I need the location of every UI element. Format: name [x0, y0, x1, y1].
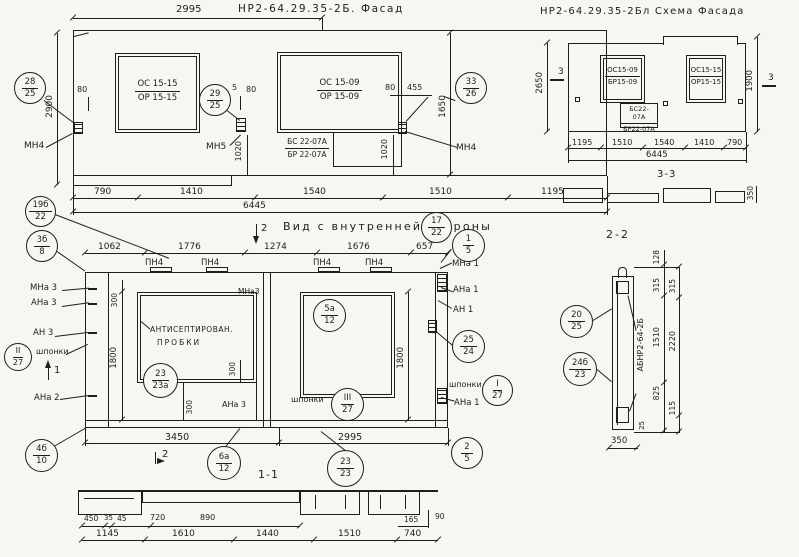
inner-section1-mark: 1: [54, 366, 60, 376]
dim-ext-line: [756, 186, 757, 203]
section-mark-line: [762, 85, 776, 87]
section33-profile-block: [563, 188, 603, 203]
scheme-dim-height-right: 1900: [746, 70, 755, 92]
inner-panel-joint-line: [263, 272, 264, 428]
callout-top: 23: [337, 458, 354, 469]
inner-label-an3: АН 3: [33, 329, 53, 338]
dim-ext-line: [634, 432, 680, 433]
callout-25-24: 2524: [452, 330, 485, 363]
s11-dim-1145: 1145: [96, 530, 119, 539]
section11-web: [142, 490, 300, 503]
callout-top: III: [341, 394, 355, 405]
s11-dim-720: 720: [150, 514, 165, 522]
s11-dim-740: 740: [404, 530, 421, 539]
edge-mark: [88, 303, 97, 305]
inner-dim-1676: 1676: [347, 243, 370, 252]
s11-dim-90: 90: [435, 513, 445, 521]
callout-bottom: 23а: [152, 381, 168, 391]
s11-dim-1510: 1510: [338, 530, 361, 539]
callout-top: 17: [428, 217, 445, 228]
inner-label-ana1-top: АНа 1: [453, 286, 479, 295]
inner-dim-1800-right: 1800: [397, 347, 406, 369]
dim-ext-line: [85, 428, 86, 446]
inner-dim-300-top: 300: [111, 293, 119, 307]
mark-top: ОС 15-15: [135, 79, 179, 92]
inner-dim-1800-left: 1800: [110, 347, 119, 369]
dim-tick: [634, 444, 640, 450]
inner-label-mna3: МНа 3: [30, 284, 57, 293]
section-mark-line: [48, 368, 49, 380]
scheme-dim-height-left: 2650: [536, 72, 545, 94]
inner-label-ana1-bottom: АНа 1: [454, 399, 480, 408]
section33-dim-350: 350: [747, 186, 755, 200]
callout-bottom: 22: [35, 212, 46, 222]
s11-dim-165: 165: [404, 516, 418, 524]
inner-label-ana2: АНа 2: [34, 394, 60, 403]
callout-bottom: 25: [571, 322, 582, 332]
scheme-dim-1510: 1510: [612, 139, 632, 147]
anchor-mn4-left: [74, 122, 83, 134]
section-mark-line: [155, 452, 156, 464]
section33-profile-block: [607, 193, 659, 203]
callout-5a-12: 5а12: [313, 299, 346, 332]
mark-bottom: БР22-07А: [621, 124, 657, 133]
s11-dim-450: 450: [84, 515, 98, 523]
dim-tick: [754, 128, 760, 134]
facade-door-mark: БС 22-07А БР 22-07А: [278, 137, 336, 160]
callout-III-27: III27: [331, 388, 364, 421]
s22-dim-315b: 315: [669, 279, 677, 293]
callout-top: 25: [460, 336, 477, 347]
s22-dim-25: 25: [639, 421, 646, 430]
callout-top: I: [493, 380, 502, 391]
dim-tick: [445, 249, 451, 255]
edge-mark: [88, 288, 97, 290]
s22-dim-315a: 315: [653, 278, 661, 292]
section-3-3-title: 3-3: [657, 170, 676, 180]
callout-bottom: 23: [575, 370, 586, 380]
inner-dim-2995: 2995: [338, 433, 362, 443]
callout-bottom: 5: [466, 246, 471, 256]
callout-top: 23: [152, 370, 169, 381]
scheme-dim-790: 790: [727, 139, 742, 147]
callout-bottom: 27: [342, 405, 353, 415]
facade-label-mn4-left: МН4: [24, 142, 44, 151]
facade-dim-5: 5: [232, 84, 237, 92]
inner-dim-1062: 1062: [98, 243, 121, 252]
callout-top: 29: [207, 90, 224, 101]
callout-bottom: 23: [340, 469, 351, 479]
edge-mark: [88, 332, 97, 334]
inner-anchor-right-bottom: [437, 388, 447, 404]
leader-line: [55, 332, 89, 337]
inner-dim-300-mid: 300: [229, 362, 237, 376]
mark-top: БС 22-07А: [285, 137, 329, 149]
section22-bottom-recess: [616, 407, 629, 423]
callout-24b-23: 24б23: [563, 352, 597, 386]
dim-ext-line: [428, 510, 429, 528]
callout-top: 33: [463, 78, 480, 89]
callout-bottom: 8: [39, 247, 44, 257]
s11-dim-45: 45: [117, 515, 127, 523]
callout-17-22: 1722: [421, 212, 452, 243]
section-arrow-up: [45, 360, 51, 368]
leader-line: [597, 369, 612, 382]
inner-dim-1776: 1776: [178, 243, 201, 252]
facade-panel-bottom-step: [73, 175, 232, 186]
facade-title: НР2-64.29.35-2Б. Фасад: [238, 4, 404, 15]
inner-note-line1: АНТИСЕПТИРОВАН.: [150, 326, 233, 334]
scheme-anchor-square: [663, 101, 668, 106]
dim-line: [122, 280, 123, 421]
dim-ext-line: [746, 132, 747, 163]
facade-dim-80-left: 80: [77, 86, 87, 94]
inner-panel-joint-line: [270, 272, 271, 428]
dim-line: [450, 33, 451, 175]
mark-bottom: БР15-09: [601, 77, 644, 87]
callout-29-25: 2925: [199, 84, 231, 116]
callout-bottom: 27: [492, 391, 503, 401]
inner-section2-mark-top: 2: [261, 224, 267, 234]
dim-line: [82, 526, 300, 527]
mark-bottom: ОР 15-09: [287, 91, 392, 103]
inner-label-mna3-small: МНа3: [238, 288, 259, 296]
s22-dim-2220: 2220: [669, 331, 677, 351]
dim-ext-line: [393, 135, 394, 175]
dim-line: [82, 540, 438, 541]
leader-line: [593, 308, 612, 321]
facade-dim-1195: 1195: [541, 188, 564, 197]
section-2-2-title: 2-2: [606, 229, 630, 240]
callout-6a-12: 6а12: [207, 446, 241, 480]
callout-bottom: 12: [219, 464, 230, 474]
dim-ext-line: [73, 186, 74, 215]
section11-detail-line: [315, 495, 316, 509]
dim-line: [85, 253, 448, 254]
section-1-1-title: 1-1: [258, 469, 279, 480]
dim-ext-line: [240, 360, 241, 383]
callout-bottom: 26: [466, 89, 477, 99]
inner-label-ana3: АНа 3: [31, 299, 57, 308]
facade-dim-1540: 1540: [303, 188, 326, 197]
callout-bottom: 27: [13, 358, 23, 367]
section33-profile-block: [715, 191, 745, 203]
dim-line: [664, 250, 665, 433]
s11-dim-1440: 1440: [256, 530, 279, 539]
facade-dim-455: 455: [407, 84, 422, 92]
s11-dim-890: 890: [200, 514, 215, 522]
mark-top: ОС 15-09: [317, 78, 361, 91]
callout-bottom: 25: [25, 89, 36, 99]
facade-dim-6445: 6445: [243, 202, 266, 211]
dim-tick: [297, 522, 303, 528]
s22-dim-825: 825: [653, 386, 661, 400]
dim-line: [679, 267, 680, 433]
facade-dim-top: 2995: [176, 5, 201, 15]
callout-II-27: II27: [4, 343, 32, 371]
callout-top: 19б: [29, 201, 51, 212]
edge-mark: [88, 395, 97, 397]
section11-detail-line: [84, 498, 134, 499]
scheme-section3-mark-left: 3: [558, 68, 564, 77]
facade-window-left-mark: ОС 15-15 ОР 15-15: [118, 79, 197, 104]
dim-ext-line: [568, 132, 569, 163]
facade-door-opening: [333, 133, 402, 167]
dim-line: [390, 95, 432, 96]
callout-28-25: 2825: [14, 72, 46, 104]
facade-dim-height-right: 1650: [439, 95, 448, 118]
callout-top: 4б: [33, 445, 50, 456]
section-mark-line: [256, 224, 257, 236]
inner-dim-1274: 1274: [264, 243, 287, 252]
dim-ext-line: [240, 96, 241, 110]
scheme-window-right-mark: ОС15-15 ОР15-15: [687, 66, 725, 87]
leader-line: [225, 428, 241, 448]
leader-line: [440, 263, 452, 269]
scheme-panel-top-step: [663, 36, 738, 45]
s22-dim-1510: 1510: [653, 327, 661, 347]
section22-stamp-mark: АБНР2-64-2Б: [637, 318, 645, 371]
mark-bottom: ОР15-15: [687, 77, 725, 87]
scheme-dim-1540: 1540: [654, 139, 674, 147]
section22-inner-line: [617, 281, 618, 425]
callout-bottom: 25: [210, 101, 221, 111]
section11-block-mid: [300, 490, 360, 515]
dim-line: [568, 148, 746, 149]
scheme-dim-1410: 1410: [694, 139, 714, 147]
facade-window-right-mark: ОС 15-09 ОР 15-09: [287, 78, 392, 103]
facade-dim-80-mid: 80: [246, 86, 256, 94]
callout-1-5: 15: [452, 229, 485, 262]
dim-line: [73, 198, 607, 199]
inner-label-an1: АН 1: [453, 306, 473, 315]
facade-dim-1510: 1510: [429, 188, 452, 197]
callout-20-25: 2025: [560, 305, 593, 338]
scheme-title: НР2-64.29.35-2Бл Схема Фасада: [540, 7, 745, 17]
dim-line: [398, 526, 428, 527]
callout-top: 1: [463, 235, 474, 246]
section11-detail-line: [345, 495, 346, 509]
section11-detail-line: [380, 495, 381, 509]
s11-dim-35: 35: [104, 515, 113, 522]
callout-top: 6а: [216, 453, 233, 464]
scheme-dim-1195: 1195: [572, 139, 592, 147]
section11-block-right: [368, 490, 420, 515]
callout-top: 3б: [34, 236, 51, 247]
s22-dim-115: 115: [669, 401, 677, 415]
inner-note-line2: ПРОБКИ: [157, 339, 201, 347]
dim-line: [85, 443, 448, 444]
mark-bottom: ОР 15-15: [118, 92, 197, 104]
section33-profile-block: [663, 188, 711, 203]
inner-dim-300-door: 300: [186, 400, 194, 414]
callout-bottom: 24: [463, 347, 474, 357]
callout-33-26: 3326: [455, 72, 487, 104]
dim-ext-line: [247, 135, 248, 175]
section22-lifting-hook: [618, 267, 627, 278]
inner-panel-bottom-line: [85, 420, 448, 421]
s22-dim-350: 350: [611, 437, 627, 446]
inner-panel-joint-line: [435, 272, 436, 428]
callout-19b-22: 19б22: [25, 196, 56, 227]
mark-top: ОС15-09: [605, 66, 640, 77]
callout-3b-8: 3б8: [26, 230, 58, 262]
inner-label-shponki-left: шпонки: [36, 348, 69, 356]
dim-line: [757, 37, 758, 132]
callout-top: 24б: [569, 359, 591, 370]
callout-top: 20: [568, 311, 585, 322]
callout-23-23a: 2323а: [143, 363, 178, 398]
inner-label-ana3-door: АНа 3: [222, 401, 246, 409]
section-mark-line: [550, 79, 564, 81]
section11-block-left: [78, 490, 142, 515]
s11-dim-1610: 1610: [172, 530, 195, 539]
mark-top: БС22-07А: [621, 105, 657, 124]
callout-23-23: 2323: [327, 450, 364, 487]
callout-top: 28: [22, 78, 39, 89]
section11-detail-line: [405, 495, 406, 509]
callout-bottom: 10: [36, 456, 47, 466]
section22-top-recess: [616, 281, 629, 294]
callout-bottom: 12: [324, 316, 335, 326]
callout-2-5: 25: [451, 437, 483, 469]
scheme-anchor-square: [738, 99, 743, 104]
dim-ext-line: [634, 267, 680, 268]
callout-top: II: [13, 347, 24, 357]
dim-line: [73, 18, 322, 19]
facade-dim-1410: 1410: [180, 188, 203, 197]
section-arrow-down: [253, 236, 259, 244]
drawing-sheet: НР2-64.29.35-2Б. Фасад 2995 ОС 15-15 ОР …: [0, 0, 799, 557]
dim-line: [408, 292, 409, 421]
inner-label-shponki-right: шпонки: [449, 381, 482, 389]
callout-I-27: I27: [482, 375, 513, 406]
inner-dim-657: 657: [416, 243, 433, 252]
callout-top: 5а: [321, 305, 338, 316]
facade-dim-1020-right: 1020: [381, 139, 389, 159]
callout-top: 2: [461, 443, 472, 454]
callout-bottom: 5: [464, 454, 469, 464]
dim-line: [568, 160, 746, 161]
facade-dim-1020-left: 1020: [235, 141, 243, 161]
dim-ext-line: [88, 97, 89, 111]
scheme-dim-6445: 6445: [646, 151, 668, 160]
dim-tick: [54, 181, 60, 187]
section-arrow-right: [157, 458, 165, 464]
leader-line: [46, 133, 73, 148]
scheme-section3-mark-right: 3: [768, 74, 774, 83]
dim-ext-line: [279, 428, 280, 446]
scheme-anchor-square: [575, 97, 580, 102]
dim-tick: [435, 536, 441, 542]
facade-label-mn5: МН5: [206, 143, 226, 152]
callout-bottom: 22: [431, 228, 442, 238]
dim-line: [547, 43, 548, 132]
s22-dim-128: 128: [653, 250, 661, 264]
dim-ext-line: [448, 428, 449, 446]
facade-label-mn4-right: МН4: [456, 144, 476, 153]
scheme-window-left-mark: ОС15-09 БР15-09: [601, 66, 644, 87]
inner-dim-3450: 3450: [165, 433, 189, 443]
facade-dim-790: 790: [94, 188, 111, 197]
scheme-door-mark: БС22-07А БР22-07А: [621, 105, 657, 133]
dim-line: [73, 212, 607, 213]
callout-4b-10: 4б10: [25, 439, 58, 472]
inner-label-shponki-mid: шпонки: [291, 396, 324, 404]
mark-top: ОС15-15: [689, 66, 724, 77]
mark-bottom: БР 22-07А: [278, 149, 336, 160]
